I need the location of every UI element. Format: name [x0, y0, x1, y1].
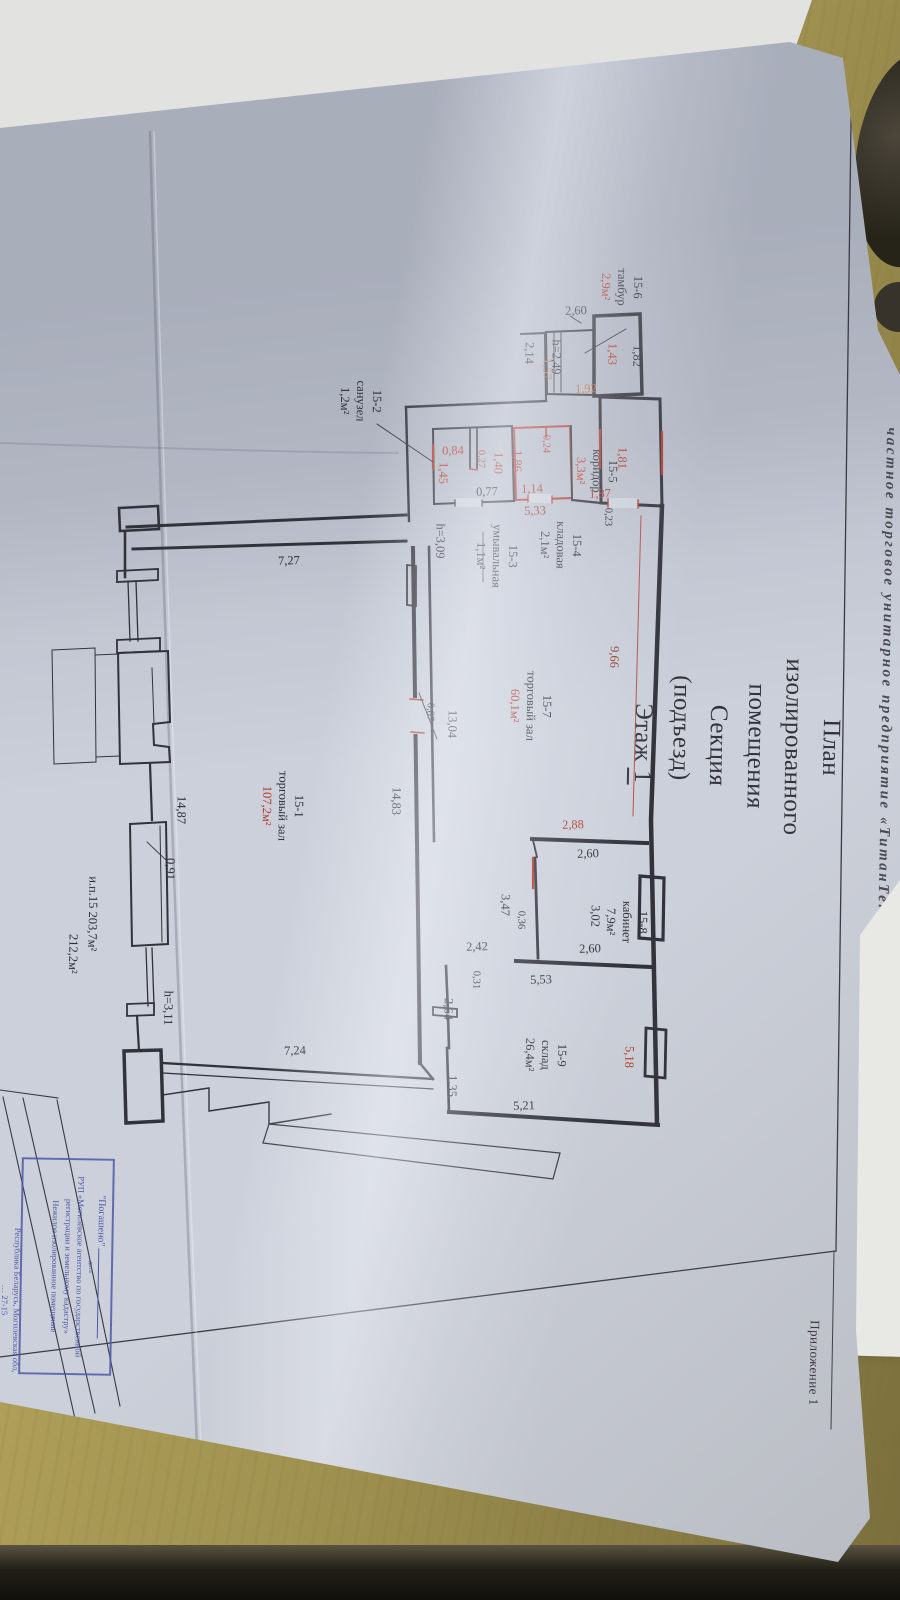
room-label-15-3: 15-3 умывальная 1,1м²: [472, 524, 521, 589]
dim-label: 1,82: [629, 345, 644, 367]
room-id: 15-4: [569, 521, 586, 569]
room-id: 15-7: [538, 671, 555, 741]
dim-label: 0,84: [442, 443, 464, 459]
dim-label: 2,14: [521, 342, 536, 364]
room-id: 15-8: [635, 901, 652, 943]
height-label: h=3,09: [432, 523, 448, 558]
floor-number: 1: [627, 768, 656, 786]
room-label-15-1: 15-1 торговый зал 107,2м²: [258, 771, 307, 842]
dim-label: 0,23: [602, 508, 613, 527]
dim-label: 5,18: [621, 1046, 636, 1068]
dim-label: 2,60: [579, 941, 601, 957]
title-line2: Секция (подъезд) Этаж 1: [623, 656, 739, 835]
stamp-address-lines: Республика Беларусь, Могилевская обл, … …: [0, 1227, 23, 1372]
floor-plan-sheet: 15-1 торговый зал 107,2м² 15-2 санузел 1…: [0, 0, 900, 1600]
room-label-15-2: 15-2 санузел 1,2м²: [337, 380, 386, 422]
dim-label: 1,43: [604, 343, 619, 365]
room-id: 15-1: [290, 771, 307, 841]
dim-label: 14,87: [173, 796, 188, 824]
dim-label: 0,31: [470, 971, 481, 990]
dim-label: 0,77: [476, 484, 498, 500]
room-name: склад: [538, 1038, 555, 1072]
dim-label: 0,24: [540, 435, 551, 454]
room-label-15-6: 15-6 тамбур 2,9м²: [598, 268, 647, 306]
dim-label: 0,91: [162, 858, 177, 880]
room-area: 107,2м²: [258, 771, 275, 841]
room-id: 15-9: [554, 1038, 571, 1072]
dim-label: 5,53: [530, 972, 552, 988]
dim-label: 7,24: [284, 1043, 306, 1059]
dim-label: 2,60: [565, 303, 587, 319]
room-label-15-7: 15-7 торговый зал 60,1м²: [506, 671, 555, 742]
room-name: торговый зал: [522, 671, 539, 741]
dim-label: 1,86: [509, 450, 524, 472]
total-line2: 212,2м²: [63, 934, 82, 974]
appendix-label: Приложение 1: [805, 1320, 822, 1406]
dim-label: 0,87: [424, 703, 435, 722]
dim-label: 1,92: [575, 381, 597, 397]
dim-label: 1,35: [444, 1075, 459, 1097]
room-name: кладовая: [553, 521, 570, 569]
drawing-title: План изолированного помещения Секция (по…: [623, 656, 851, 837]
room-area: 1,1м²: [472, 524, 489, 588]
dim-label: 7,27: [278, 553, 300, 569]
dim-label: 2,88: [562, 817, 584, 833]
room-label-15-4: 15-4 кладовая 2,1м²: [537, 521, 586, 569]
dim-label: 0,27: [475, 450, 486, 469]
dim-label: 1,87: [589, 486, 611, 502]
dim-label: 2,60: [577, 846, 599, 862]
premises-total-area: и.п.15 203,7м² 212,2м²: [63, 876, 102, 974]
height-label: h=3,11: [160, 991, 176, 1026]
dim-label: 13,04: [444, 710, 459, 738]
total-line1: и.п.15 203,7м²: [85, 876, 100, 951]
dim-label: 3,47: [497, 894, 512, 916]
photo-of-floor-plan-document: 15-1 торговый зал 107,2м² 15-2 санузел 1…: [0, 0, 900, 1600]
dim-label: 0,36: [515, 911, 526, 930]
room-area: 2,9м²: [598, 268, 615, 306]
room-area: 3,3м²: [573, 449, 590, 493]
room-name: торговый зал: [274, 771, 291, 841]
room-area: 2,1м²: [537, 521, 554, 569]
room-id: 15-2: [369, 381, 386, 422]
dim-label: 9,66: [606, 646, 621, 668]
cancellation-stamp: "Погашено" дата РУП «Могилевское агентст…: [18, 1157, 115, 1376]
room-area: 1,2м²: [337, 380, 354, 421]
dim-label: 14,83: [388, 787, 403, 815]
room-id: 15-6: [630, 268, 647, 306]
room-area: 26,4м²: [522, 1038, 539, 1072]
room-name: кабинет: [619, 901, 636, 943]
dim-label: 5,21: [513, 1098, 535, 1114]
dim-label: 3,02: [587, 905, 602, 927]
dim-label: 1,14: [521, 481, 543, 497]
dim-label: 1,45: [435, 462, 450, 484]
dim-label: 1,40: [490, 452, 505, 474]
room-area: 60,1м²: [506, 671, 523, 741]
desk-edge-shadow: [0, 1545, 900, 1600]
room-label-15-8: 15-8 кабинет 7,9м²: [603, 900, 652, 943]
room-name: умывальная: [488, 524, 505, 588]
room-area: 7,9м²: [603, 900, 620, 942]
room-name: санузел: [353, 380, 370, 421]
dim-label: 1,81: [614, 447, 629, 469]
dim-label: 1,57: [539, 358, 554, 380]
dim-label: 2,42: [466, 939, 488, 955]
title-line1: План изолированного помещения: [735, 657, 851, 836]
dim-label: 5,33: [524, 503, 546, 519]
room-name: тамбур: [614, 268, 631, 306]
dim-label: 2,64: [440, 998, 455, 1020]
room-id: 15-3: [504, 524, 521, 588]
room-label-15-9: 15-9 склад 26,4м²: [522, 1038, 571, 1072]
